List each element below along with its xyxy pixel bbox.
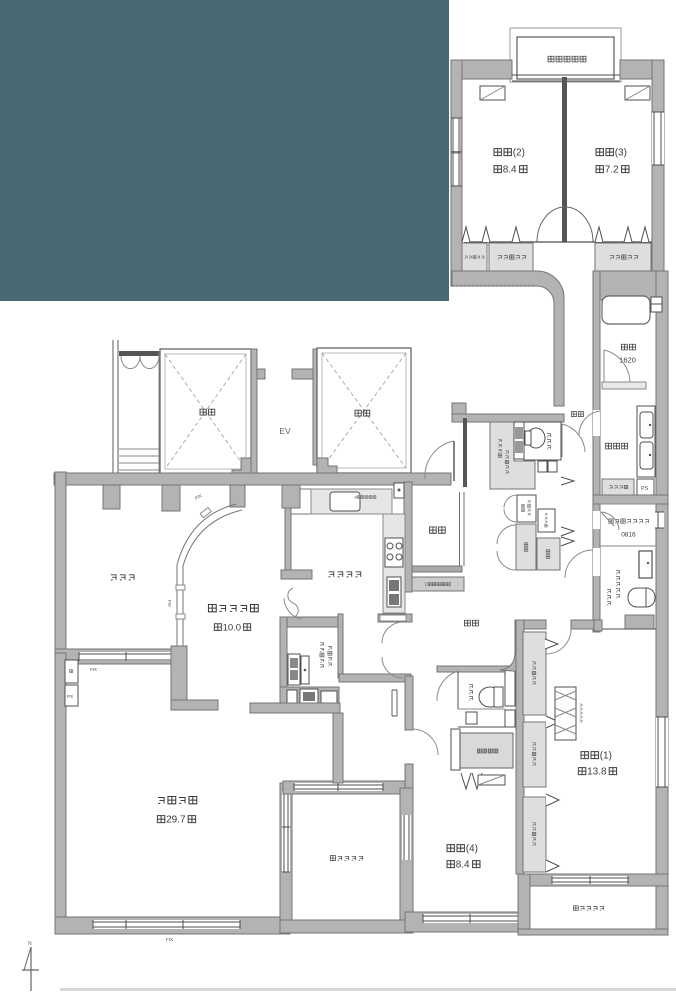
svg-text:N: N <box>28 941 32 947</box>
svg-text:8.4: 8.4 <box>503 165 517 176</box>
svg-text:PS: PS <box>67 694 73 699</box>
svg-text:13.8: 13.8 <box>587 767 607 778</box>
svg-text:FIX: FIX <box>166 937 173 942</box>
svg-text:(1): (1) <box>600 751 612 762</box>
svg-text:FIX: FIX <box>167 600 172 607</box>
svg-text:10.0: 10.0 <box>223 622 242 633</box>
svg-text:PS: PS <box>641 486 649 492</box>
svg-text:8.4: 8.4 <box>456 860 470 871</box>
svg-text:(2): (2) <box>513 148 525 159</box>
svg-text:EV: EV <box>279 426 291 436</box>
svg-text:7.2: 7.2 <box>605 165 619 176</box>
svg-text:0816: 0816 <box>621 531 636 538</box>
svg-text:FIX: FIX <box>90 667 97 672</box>
svg-text:29.7: 29.7 <box>166 815 186 826</box>
svg-text:(3): (3) <box>615 148 627 159</box>
svg-text:(4): (4) <box>466 844 478 855</box>
